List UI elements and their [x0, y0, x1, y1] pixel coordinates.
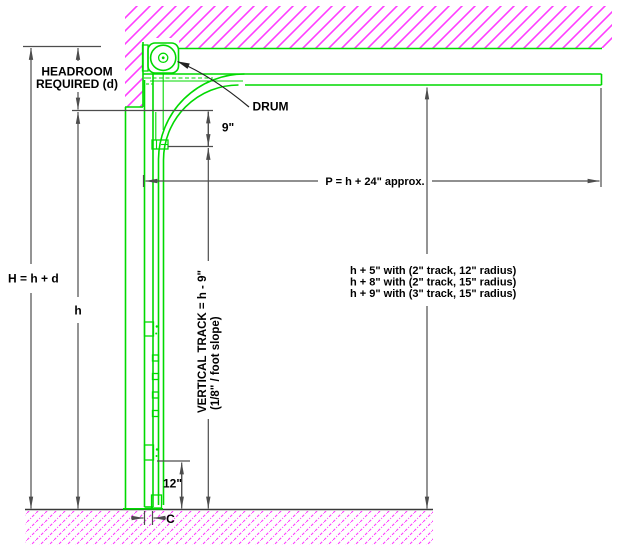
- bottom-bracket: [145, 445, 159, 460]
- bottom-offset-label: 12": [163, 477, 182, 491]
- diagram-canvas: HEADROOM REQUIRED (d) H = h + d h DRUM 9…: [0, 0, 618, 556]
- total-height-label: H = h + d: [8, 272, 59, 286]
- headroom-label-line2: REQUIRED (d): [36, 77, 118, 91]
- floor-section: [25, 510, 433, 546]
- wall-section: [125, 6, 612, 107]
- vertical-track-slope-label: (1/8" / foot slope): [210, 316, 222, 410]
- radius-note-3: h + 9" with (3" track, 15" radius): [350, 288, 517, 300]
- horizontal-track-label: P = h + 24" approx.: [325, 176, 424, 188]
- lock-bracket: [145, 322, 159, 336]
- garage-door-headroom-diagram: HEADROOM REQUIRED (d) H = h + d h DRUM 9…: [0, 0, 618, 556]
- top-offset-label: 9": [222, 121, 234, 135]
- opening-height-label: h: [74, 304, 81, 318]
- floor-hatch: [25, 511, 433, 545]
- radius-note-1: h + 5" with (2" track, 12" radius): [350, 265, 517, 277]
- drum-label: DRUM: [253, 100, 289, 114]
- labels: HEADROOM REQUIRED (d) H = h + d h DRUM 9…: [8, 65, 517, 527]
- drum-center: [162, 56, 165, 59]
- vertical-track-label: VERTICAL TRACK = h - 9": [197, 270, 209, 413]
- wall-ceiling-hatch: [125, 6, 612, 107]
- radius-note-2: h + 8" with (2" track, 15" radius): [350, 277, 517, 289]
- clearance-label: C: [166, 512, 175, 526]
